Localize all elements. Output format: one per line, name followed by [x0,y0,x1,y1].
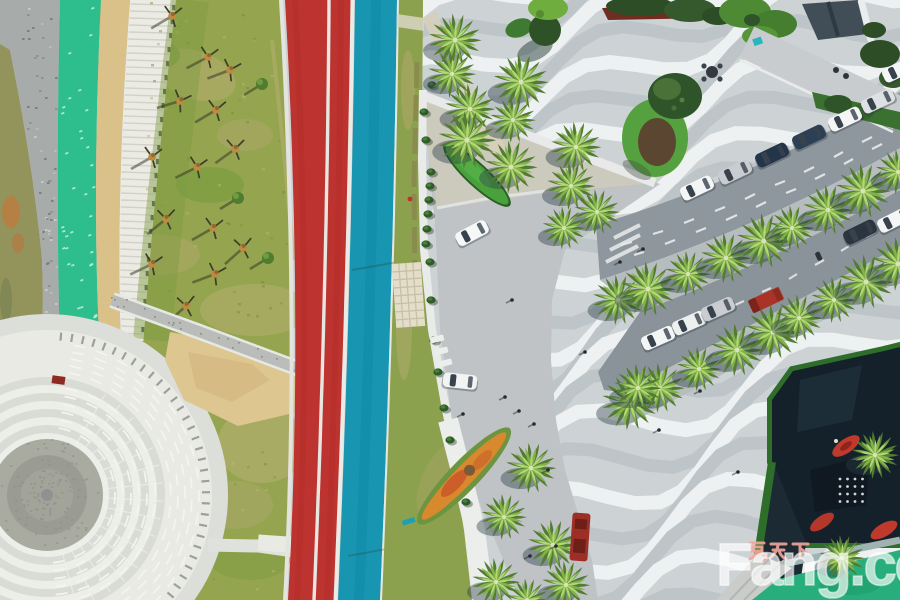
svg-text:Fang.com: Fang.com [716,531,900,598]
